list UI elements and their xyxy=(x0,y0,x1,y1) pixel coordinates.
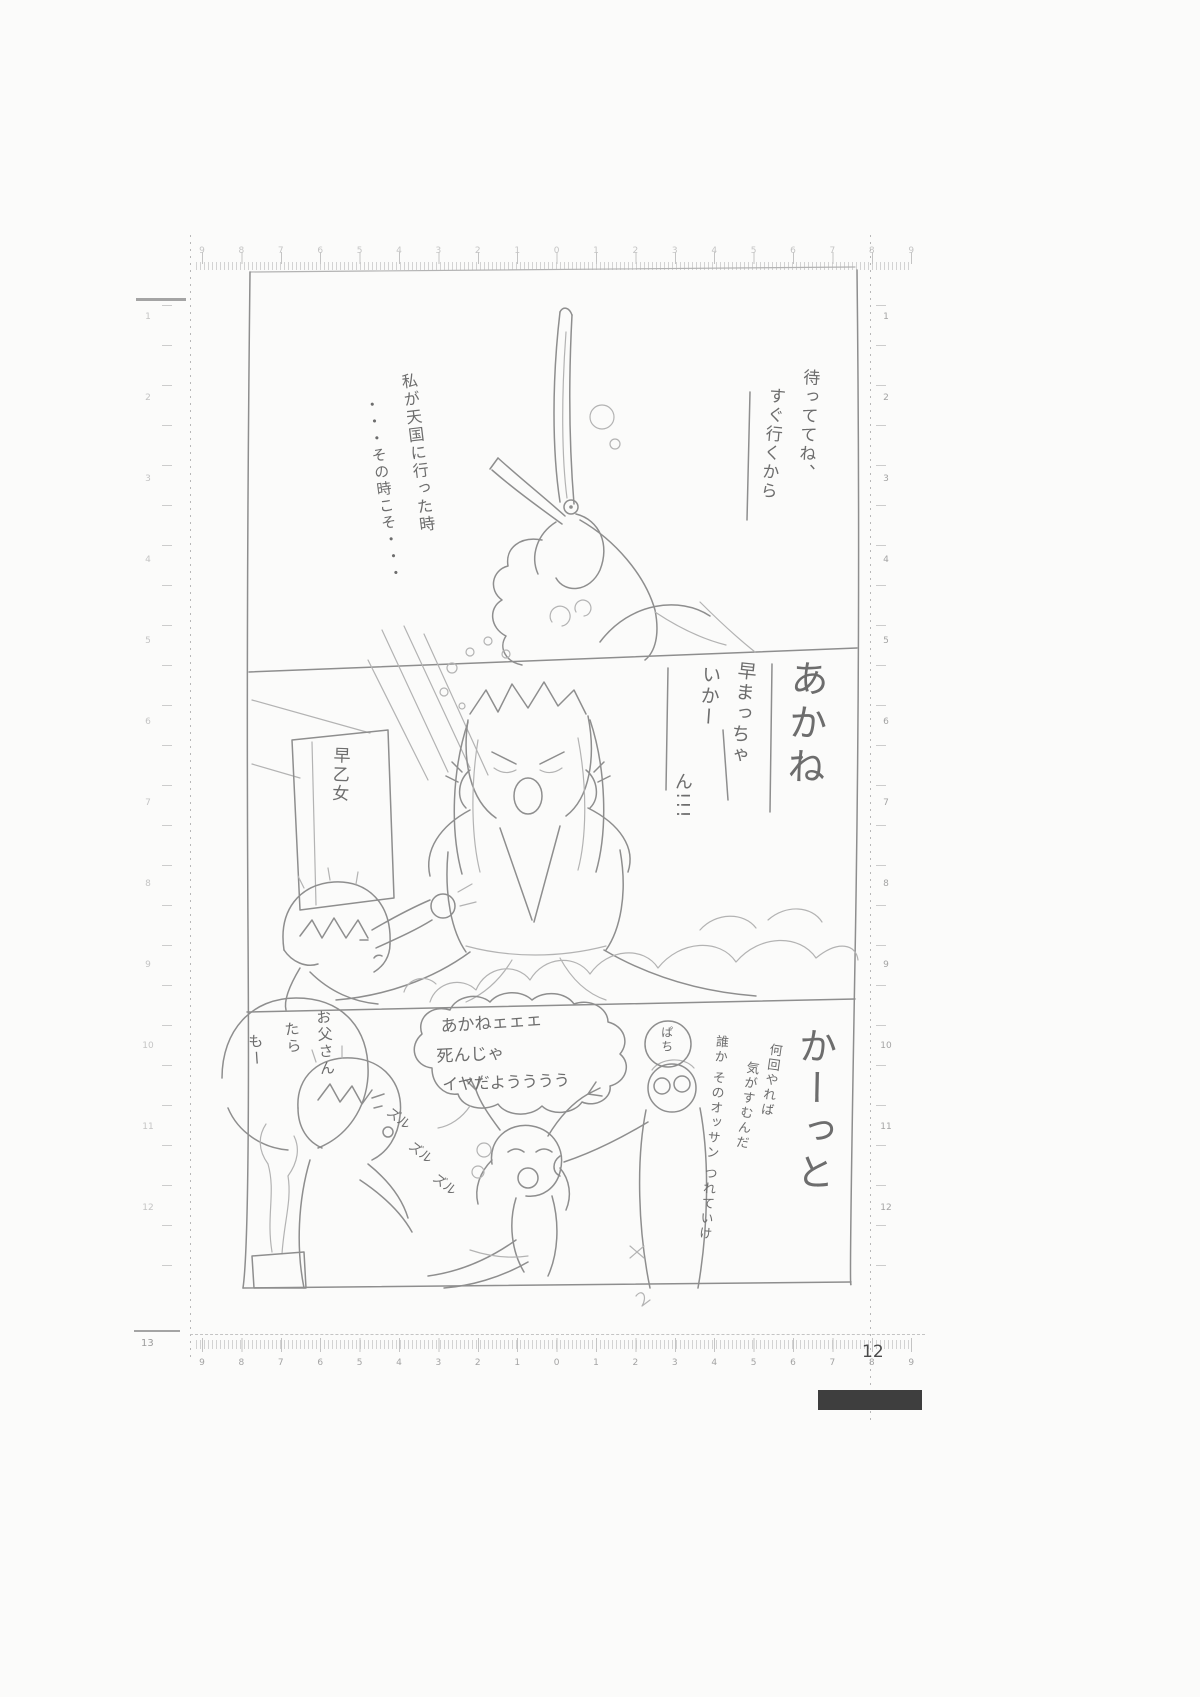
ruler-number: 2 xyxy=(145,393,151,403)
ruler-number: 4 xyxy=(883,555,889,565)
panel1-dialogue-dash xyxy=(747,392,750,520)
panel3-bubble-akane-col3: もー xyxy=(246,1033,264,1068)
ruler-number: 9 xyxy=(199,246,205,256)
ruler-number: 8 xyxy=(869,246,875,256)
ruler-number: 8 xyxy=(239,246,245,256)
ruler-number: 3 xyxy=(436,1358,442,1368)
storyboard-scan-page: 13 12 xyxy=(0,0,1200,1697)
ruler-number: 5 xyxy=(357,1358,363,1368)
ruler-number: 2 xyxy=(475,1358,481,1368)
ruler-number: 3 xyxy=(672,246,678,256)
panel3-shout-large: かーっと xyxy=(791,1026,834,1195)
ruler-number: 9 xyxy=(883,960,889,970)
ruler-number: 10 xyxy=(142,1041,153,1051)
panel3-bubble-akane-col2: たら xyxy=(282,1020,301,1055)
ruler-number: 2 xyxy=(475,246,481,256)
ruler-number: 6 xyxy=(790,246,796,256)
ruler-number: 9 xyxy=(908,1358,914,1368)
ruler-number: 6 xyxy=(790,1358,796,1368)
ruler-number: 6 xyxy=(883,717,889,727)
ruler-number: 5 xyxy=(357,246,363,256)
ruler-number: 4 xyxy=(711,246,717,256)
ruler-number: 11 xyxy=(880,1122,891,1132)
ruler-number: 11 xyxy=(142,1122,153,1132)
ruler-number: 7 xyxy=(278,1358,284,1368)
ruler-number: 9 xyxy=(908,246,914,256)
ruler-number: 0 xyxy=(554,246,560,256)
ruler-number: 7 xyxy=(830,246,836,256)
panel3-cloud-line2: 死んじゃ xyxy=(436,1044,505,1066)
panel2-shout-large: あかね xyxy=(781,658,825,791)
ruler-number: 4 xyxy=(711,1358,717,1368)
ruler-number: 1 xyxy=(514,1358,520,1368)
ruler-number: 7 xyxy=(883,798,889,808)
ruler-number: 2 xyxy=(633,1358,639,1368)
ruler-number: 8 xyxy=(145,879,151,889)
panel2-shout-col2: いかー xyxy=(696,664,720,728)
ruler-number: 5 xyxy=(751,1358,757,1368)
panel3-small-bubble-text: ぱち xyxy=(660,1026,673,1054)
ruler-number: 1 xyxy=(514,246,520,256)
ruler-number: 8 xyxy=(869,1358,875,1368)
ruler-number: 2 xyxy=(633,246,639,256)
ruler-number: 9 xyxy=(145,960,151,970)
sketch-svg xyxy=(0,0,1200,1697)
panel2-shout-col3: ん!!! xyxy=(672,772,691,820)
ruler-number: 12 xyxy=(142,1203,153,1213)
panel2-sketch xyxy=(252,600,858,1010)
ruler-number: 8 xyxy=(883,879,889,889)
ruler-number: 4 xyxy=(396,246,402,256)
ruler-number: 5 xyxy=(145,636,151,646)
ruler-number: 4 xyxy=(145,555,151,565)
ruler-number: 5 xyxy=(751,246,757,256)
ruler-number: 2 xyxy=(883,393,889,403)
ruler-number: 1 xyxy=(593,1358,599,1368)
ruler-number: 1 xyxy=(883,312,889,322)
ruler-number: 6 xyxy=(317,1358,323,1368)
ruler-number: 10 xyxy=(880,1041,891,1051)
ruler-number: 7 xyxy=(278,246,284,256)
ruler-number: 0 xyxy=(554,1358,560,1368)
ruler-number: 5 xyxy=(883,636,889,646)
ruler-number: 3 xyxy=(672,1358,678,1368)
ruler-number: 1 xyxy=(145,312,151,322)
panel1-scissors-hand-sketch xyxy=(490,308,755,665)
ruler-number: 7 xyxy=(830,1358,836,1368)
ruler-number: 4 xyxy=(396,1358,402,1368)
ruler-number: 12 xyxy=(880,1203,891,1213)
ruler-number: 1 xyxy=(593,246,599,256)
ruler-number: 3 xyxy=(883,474,889,484)
panel3-bubble-akane-col1: お父さん xyxy=(314,1009,334,1078)
ruler-number: 3 xyxy=(436,246,442,256)
ruler-number: 9 xyxy=(199,1358,205,1368)
ruler-number: 8 xyxy=(239,1358,245,1368)
ruler-number: 3 xyxy=(145,474,151,484)
ruler-number: 6 xyxy=(145,717,151,727)
panel2-sign-text: 早乙女 xyxy=(328,746,348,804)
ruler-number: 7 xyxy=(145,798,151,808)
ruler-number: 6 xyxy=(317,246,323,256)
